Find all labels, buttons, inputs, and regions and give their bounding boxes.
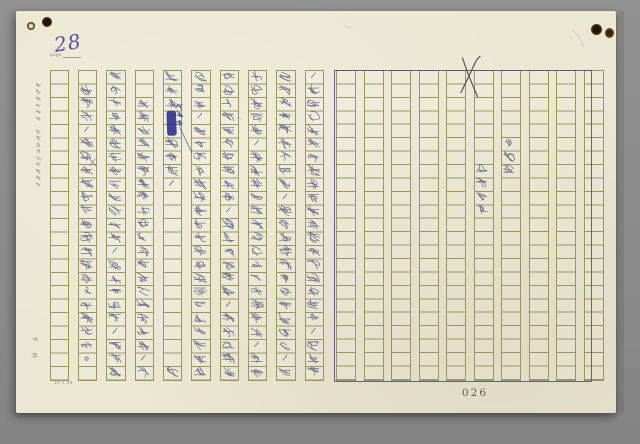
scanned-manuscript: 28 page 026 20 × 20 [0,0,640,444]
handwriting-column [222,74,235,376]
handwriting-column [165,71,178,377]
handwriting-column [80,85,93,361]
handwriting-column [251,71,264,377]
margin-small-print [32,83,41,359]
small-cross-mark [89,158,96,166]
handwriting-column [137,100,150,377]
section-label-first [504,139,515,173]
handwriting-column [307,73,320,375]
handwriting-column [279,72,292,375]
section-label-second [476,164,487,213]
insertion-note [177,104,192,153]
handwriting-column [194,72,207,375]
cross-out-mark [461,57,480,97]
faint-smudges [236,4,584,119]
handwriting-column [109,72,122,376]
handwriting-layer [0,0,640,444]
